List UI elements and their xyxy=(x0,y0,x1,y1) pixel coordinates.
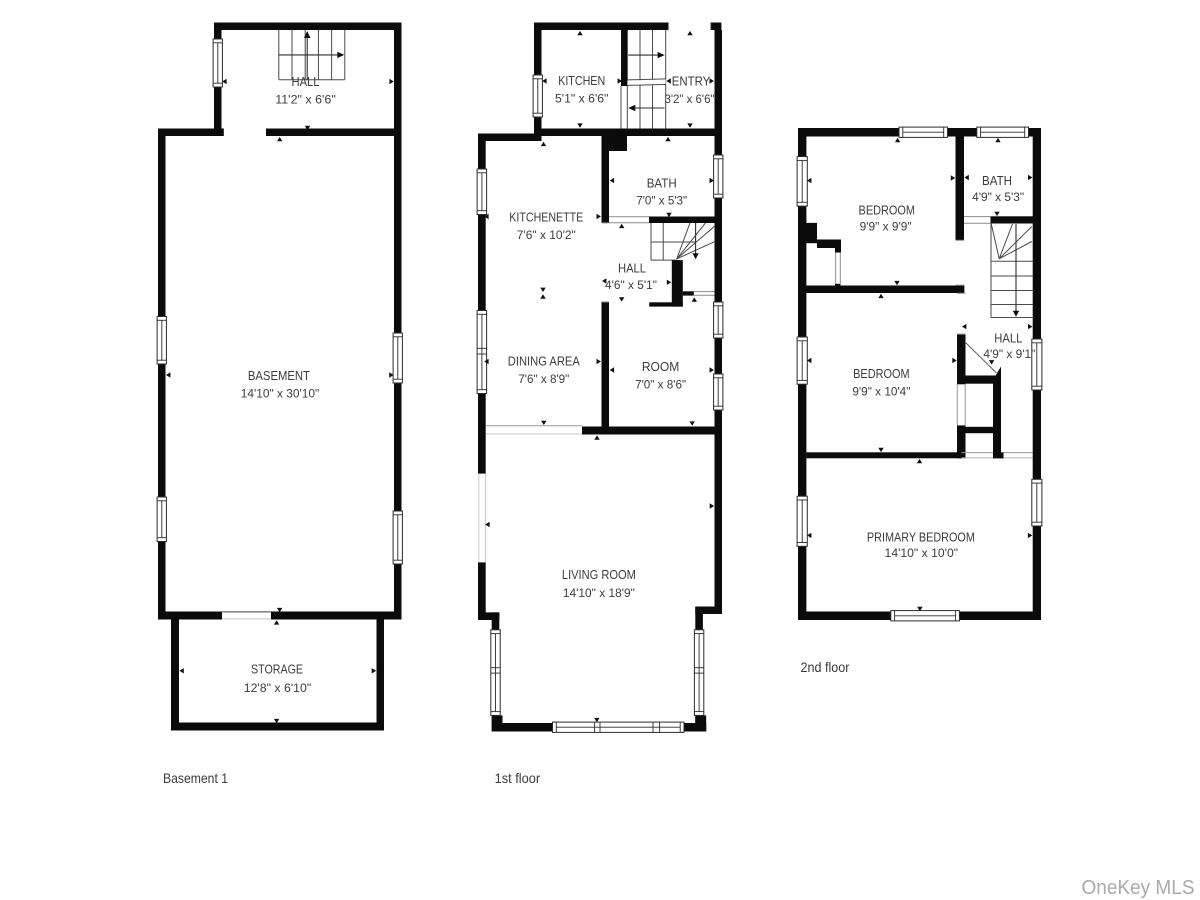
svg-text:DINING AREA: DINING AREA xyxy=(508,355,581,369)
svg-text:BASEMENT: BASEMENT xyxy=(248,369,310,383)
svg-text:4'9" x 9'1": 4'9" x 9'1" xyxy=(983,347,1035,361)
svg-text:4'6" x 5'1": 4'6" x 5'1" xyxy=(605,278,657,292)
svg-text:2nd floor: 2nd floor xyxy=(801,659,850,675)
svg-text:ROOM: ROOM xyxy=(642,360,680,374)
svg-text:7'6" x 10'2": 7'6" x 10'2" xyxy=(517,228,576,242)
svg-text:HALL: HALL xyxy=(292,75,320,89)
svg-text:PRIMARY BEDROOM: PRIMARY BEDROOM xyxy=(867,530,975,544)
svg-text:STORAGE: STORAGE xyxy=(251,663,303,677)
svg-text:ENTRY: ENTRY xyxy=(672,75,711,89)
svg-text:7'0" x 8'6": 7'0" x 8'6" xyxy=(635,378,686,392)
svg-text:9'9" x 9'9": 9'9" x 9'9" xyxy=(860,219,912,233)
svg-text:KITCHEN: KITCHEN xyxy=(558,74,605,88)
svg-text:11'2" x 6'6": 11'2" x 6'6" xyxy=(275,92,336,106)
svg-text:7'0" x 5'3": 7'0" x 5'3" xyxy=(636,193,687,207)
svg-text:LIVING ROOM: LIVING ROOM xyxy=(562,568,636,582)
svg-text:14'10" x 30'10": 14'10" x 30'10" xyxy=(241,387,320,401)
svg-text:9'9" x 10'4": 9'9" x 10'4" xyxy=(852,384,910,398)
svg-text:BATH: BATH xyxy=(982,174,1012,188)
svg-text:Basement 1: Basement 1 xyxy=(163,770,228,786)
svg-text:OneKey MLS: OneKey MLS xyxy=(1082,877,1195,899)
svg-text:BEDROOM: BEDROOM xyxy=(859,204,916,218)
svg-text:14'10" x 18'9": 14'10" x 18'9" xyxy=(563,586,635,600)
svg-text:3'2" x 6'6": 3'2" x 6'6" xyxy=(665,92,715,106)
svg-text:BEDROOM: BEDROOM xyxy=(853,367,910,381)
svg-text:4'9" x 5'3": 4'9" x 5'3" xyxy=(972,190,1024,204)
svg-text:1st floor: 1st floor xyxy=(495,770,541,786)
svg-text:KITCHENETTE: KITCHENETTE xyxy=(509,211,583,225)
svg-text:5'1" x 6'6": 5'1" x 6'6" xyxy=(555,92,609,106)
svg-text:BATH: BATH xyxy=(647,177,677,191)
svg-text:14'10" x 10'0": 14'10" x 10'0" xyxy=(885,546,959,560)
svg-text:HALL: HALL xyxy=(994,332,1022,346)
svg-text:7'6" x 8'9": 7'6" x 8'9" xyxy=(518,372,569,386)
svg-text:12'8" x 6'10": 12'8" x 6'10" xyxy=(244,681,312,695)
svg-text:HALL: HALL xyxy=(618,262,646,276)
